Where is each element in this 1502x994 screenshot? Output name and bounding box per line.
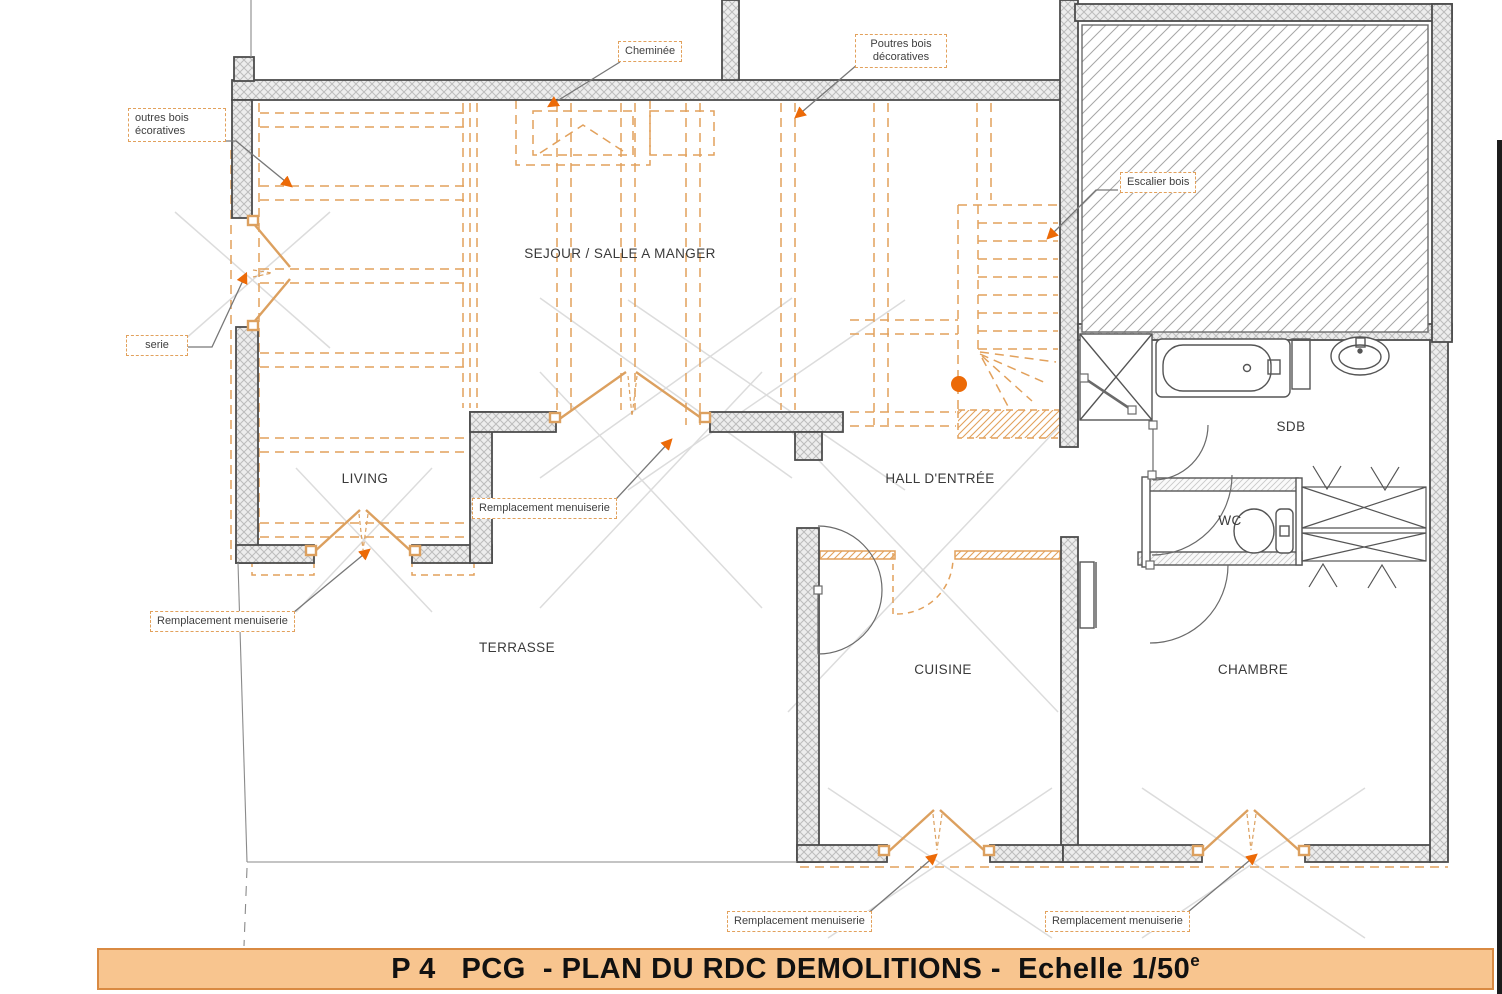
terrasse-edge-west bbox=[238, 563, 247, 862]
title-text: P 4 PCG - PLAN DU RDC DEMOLITIONS - Eche… bbox=[391, 953, 1190, 986]
callout-menuiserie-cut: serie bbox=[126, 335, 188, 356]
title-bar: P 4 PCG - PLAN DU RDC DEMOLITIONS - Eche… bbox=[97, 948, 1494, 990]
room-label-living: LIVING bbox=[342, 471, 389, 486]
leader-poutres-left bbox=[216, 141, 291, 186]
demolished-sill-lines bbox=[252, 563, 1448, 867]
wall-cuisine-left bbox=[797, 528, 819, 862]
demolished-door-swing bbox=[893, 553, 953, 616]
callout-rempl-bottom-1: Remplacement menuiserie bbox=[727, 911, 872, 932]
room-label-sdb: SDB bbox=[1277, 419, 1306, 434]
wall-wc-top bbox=[1148, 478, 1298, 491]
wall-stairblock-top bbox=[1075, 4, 1452, 21]
room-label-hall: HALL D'ENTRÉE bbox=[885, 471, 994, 486]
toilet bbox=[1234, 509, 1293, 553]
hall-closet bbox=[1080, 562, 1096, 628]
partitions-fixtures bbox=[1080, 334, 1426, 628]
ceiling-beams-horizontal bbox=[231, 103, 470, 560]
shower bbox=[1080, 334, 1152, 420]
callout-poutres-right: Poutres bois décoratives bbox=[855, 34, 947, 68]
callout-cheminee: Cheminée bbox=[618, 41, 682, 62]
title-scale-superscript: e bbox=[1190, 952, 1199, 969]
door-living-south bbox=[306, 510, 420, 555]
demolition-point-marker bbox=[951, 376, 967, 392]
window-cuisine-south bbox=[879, 810, 994, 855]
wall-left-lower bbox=[236, 327, 258, 563]
wall-sejour-south-east bbox=[710, 412, 843, 432]
property-line-bottom bbox=[244, 868, 247, 946]
wall-hall-east-lower bbox=[1061, 537, 1078, 862]
room-label-wc: WC bbox=[1218, 513, 1241, 528]
floor-plan-page: SEJOUR / SALLE A MANGER LIVING TERRASSE … bbox=[0, 0, 1502, 994]
bathtub bbox=[1156, 339, 1310, 397]
door-cuisine bbox=[814, 526, 882, 654]
wall-left-upper bbox=[232, 100, 252, 218]
room-label-chambre: CHAMBRE bbox=[1218, 662, 1288, 677]
site-lines bbox=[238, 0, 797, 946]
window-left-wall bbox=[248, 216, 290, 330]
callout-rempl-center: Remplacement menuiserie bbox=[472, 498, 617, 519]
wall-closet-partition bbox=[1296, 478, 1302, 565]
callout-rempl-bottom-2: Remplacement menuiserie bbox=[1045, 911, 1190, 932]
wall-stairblock-right bbox=[1432, 4, 1452, 342]
door-chambre bbox=[1146, 561, 1228, 643]
room-label-sejour: SEJOUR / SALLE A MANGER bbox=[524, 246, 716, 261]
sink bbox=[1331, 337, 1389, 375]
wall-east bbox=[1430, 340, 1448, 862]
wall-sejour-south-west bbox=[470, 412, 556, 432]
door-sdb bbox=[1149, 421, 1208, 480]
room-label-terrasse: TERRASSE bbox=[479, 640, 555, 655]
wall-living-bottom-left bbox=[236, 545, 314, 563]
wall-top-stub-mid bbox=[722, 0, 739, 80]
wall-top bbox=[232, 80, 1062, 100]
fireplace-outline bbox=[516, 99, 714, 165]
sheet-edge-strip bbox=[1497, 140, 1502, 994]
callout-rempl-left: Remplacement menuiserie bbox=[150, 611, 295, 632]
wall-living-right bbox=[470, 412, 492, 563]
wall-chambre-bottom-right bbox=[1305, 845, 1432, 862]
callout-poutres-left: outres bois écoratives bbox=[128, 108, 226, 142]
wall-chambre-bottom-left bbox=[1063, 845, 1202, 862]
room-label-cuisine: CUISINE bbox=[914, 662, 972, 677]
window-chambre-south bbox=[1193, 810, 1309, 855]
wall-cuisine-bottom-right bbox=[990, 845, 1063, 862]
annotation-leaders bbox=[186, 62, 1256, 922]
wall-step bbox=[795, 432, 822, 460]
floor-plan-drawing bbox=[0, 0, 1502, 994]
wall-top-left-stub bbox=[234, 57, 254, 81]
wall-wc-west bbox=[1142, 477, 1150, 567]
wardrobe-closets bbox=[1302, 466, 1426, 588]
callout-escalier-bois: Escalier bois bbox=[1120, 172, 1196, 193]
wall-cuisine-bottom-left bbox=[797, 845, 887, 862]
